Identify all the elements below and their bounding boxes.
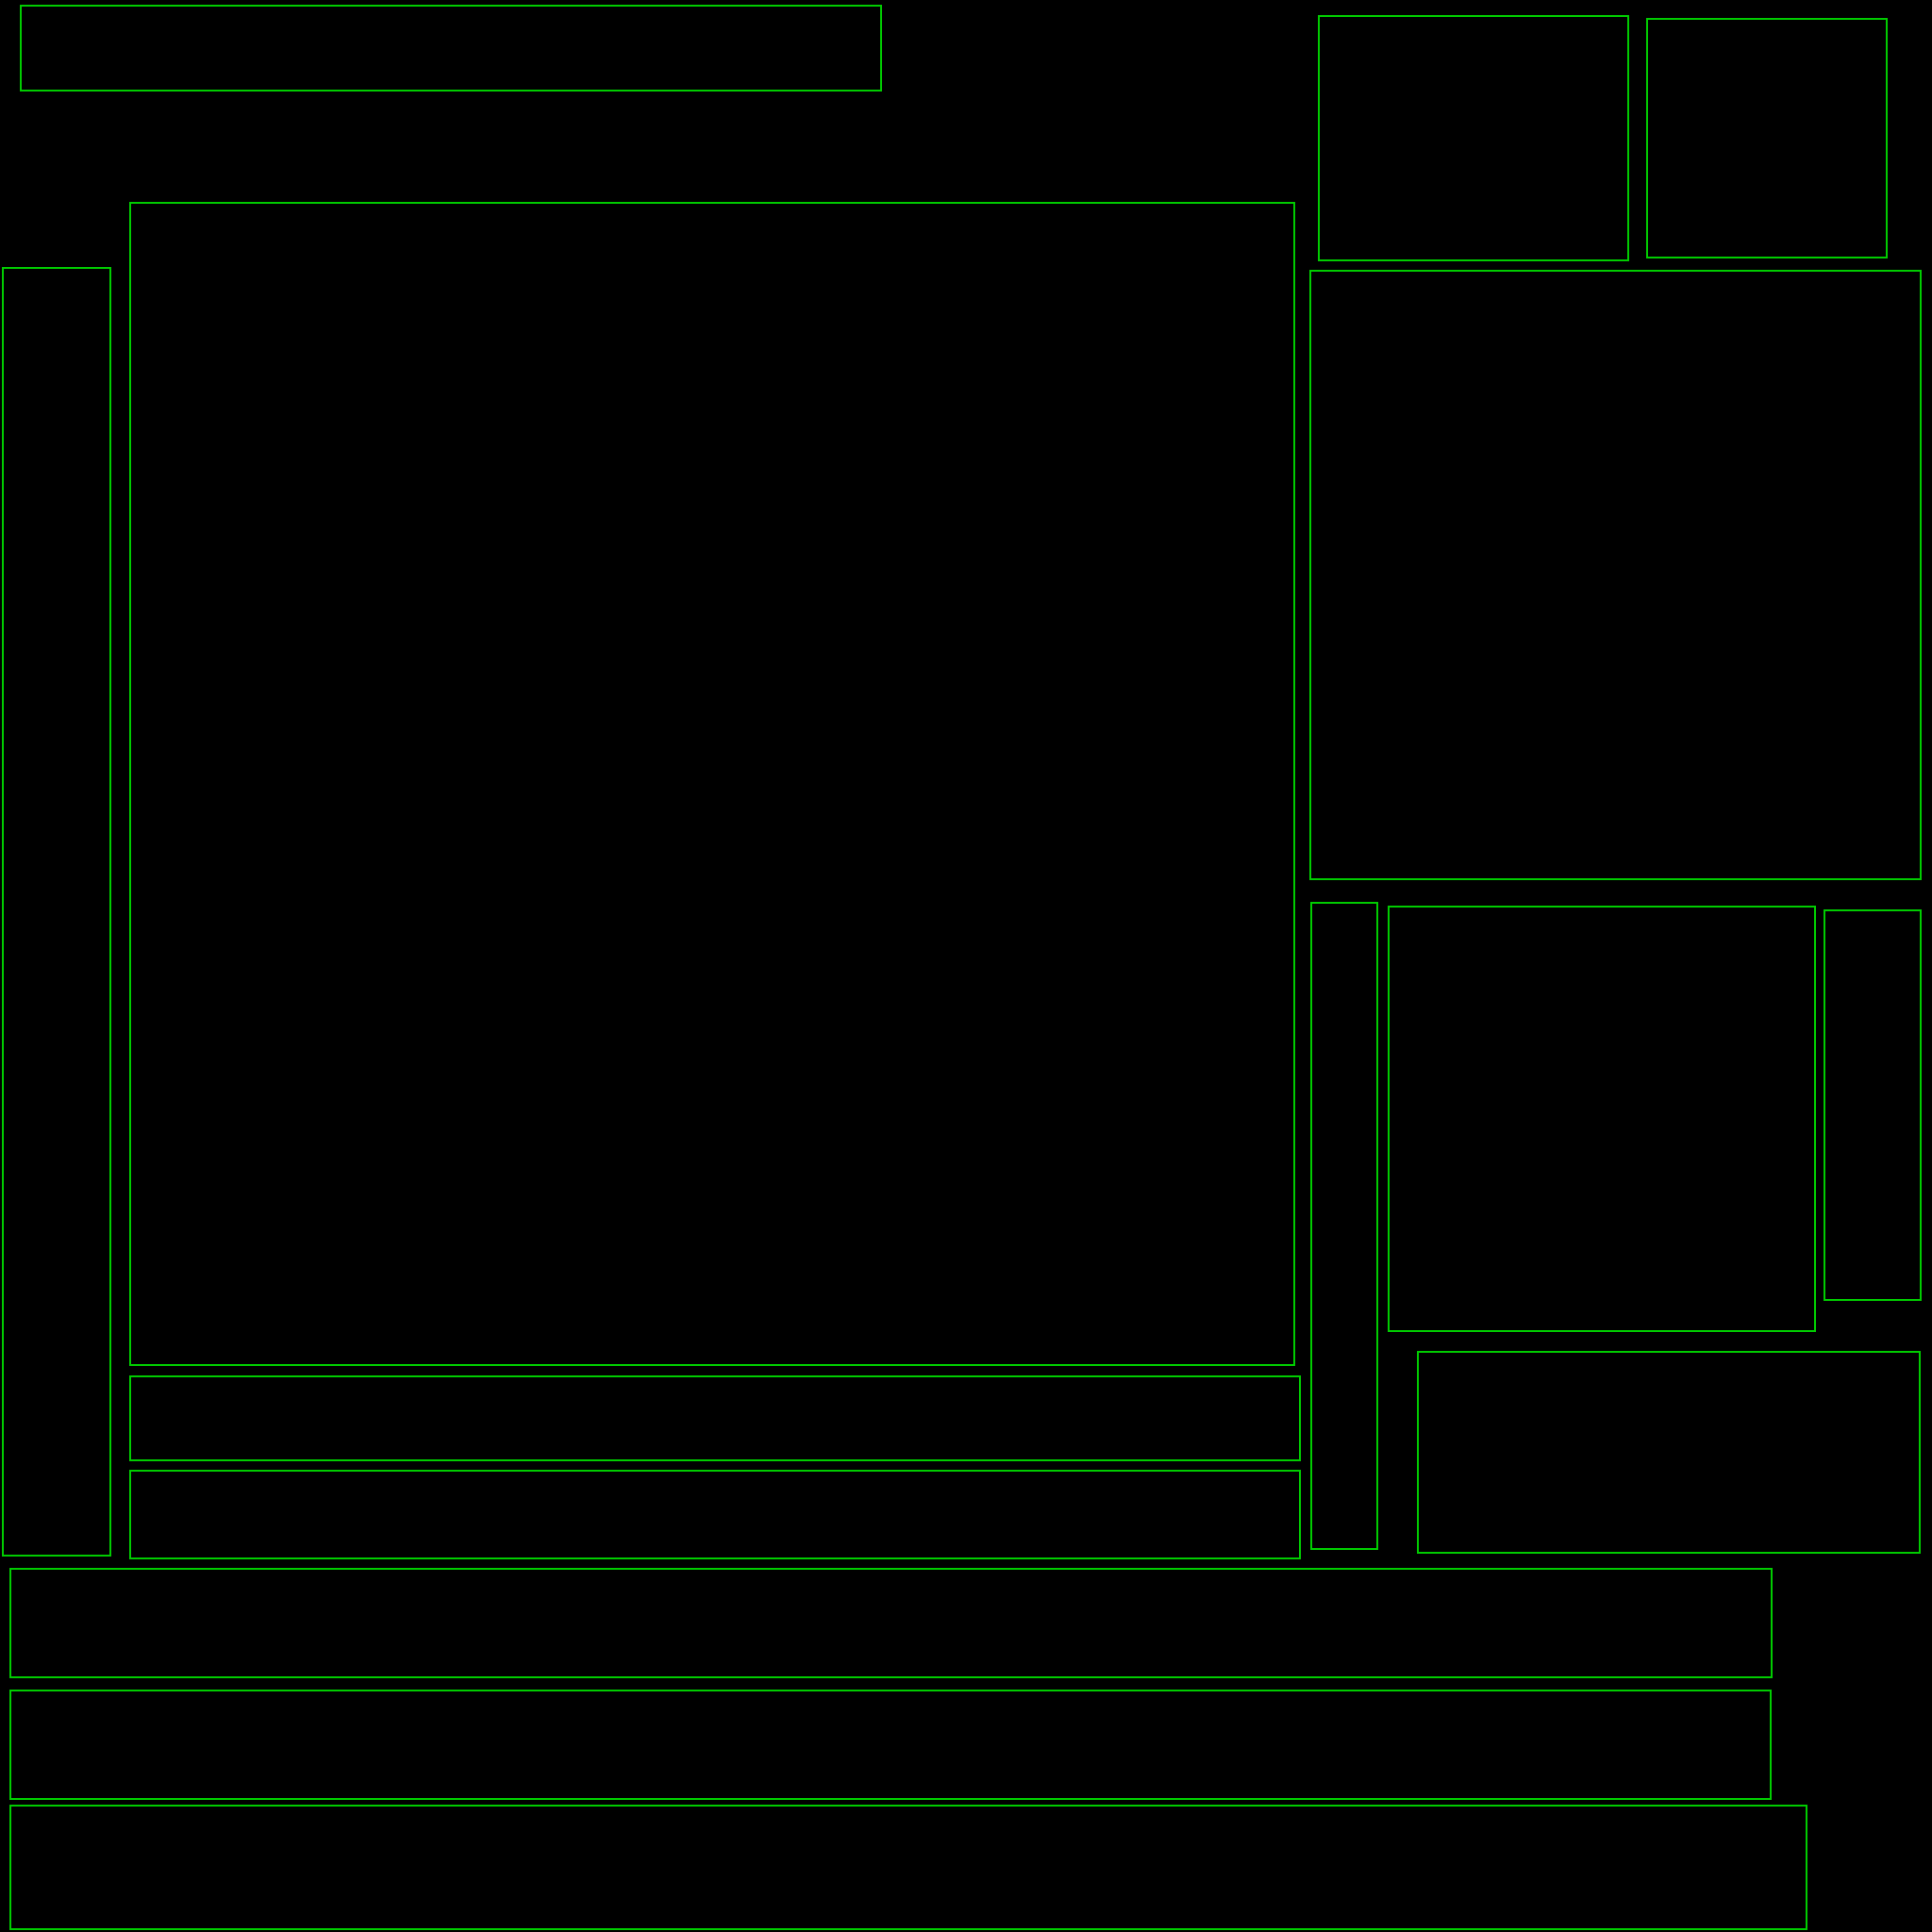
main-bottom-strip-1	[129, 1375, 1301, 1461]
annotation-canvas	[0, 0, 1932, 1932]
footer-bar-1	[9, 1568, 1773, 1678]
far-right-column	[1824, 909, 1922, 1301]
right-lower-panel	[1417, 1351, 1921, 1554]
main-bottom-strip-2	[129, 1470, 1301, 1559]
right-narrow-column	[1310, 902, 1378, 1550]
main-panel	[129, 202, 1295, 1366]
footer-bar-3	[9, 1805, 1807, 1930]
top-left-bar	[20, 5, 882, 92]
top-right-panel-a	[1318, 15, 1629, 261]
right-panel-medium	[1388, 906, 1816, 1332]
right-panel-large	[1309, 270, 1922, 880]
top-right-panel-b	[1646, 18, 1888, 258]
footer-bar-2	[9, 1690, 1772, 1800]
left-sidebar-column	[2, 267, 111, 1557]
